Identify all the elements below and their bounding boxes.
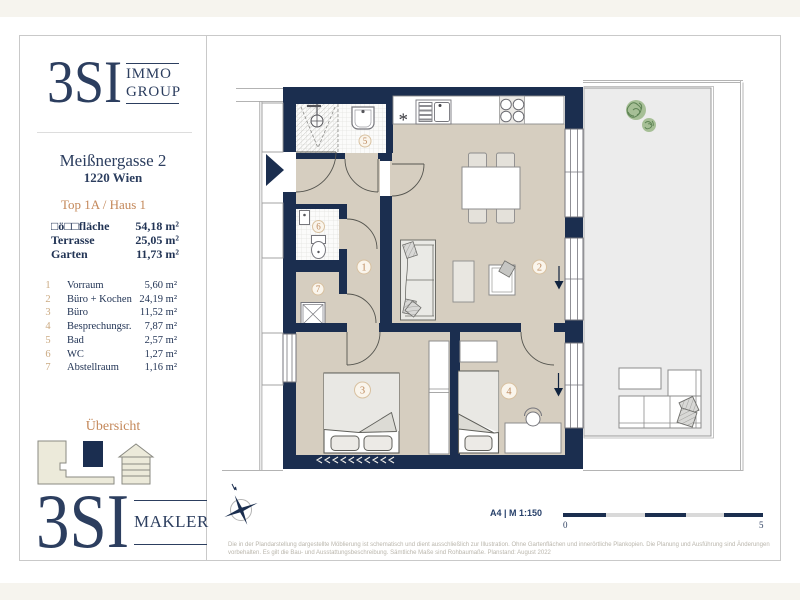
svg-text:3: 3 bbox=[360, 386, 365, 397]
svg-text:4: 4 bbox=[506, 387, 512, 398]
svg-text:7: 7 bbox=[316, 284, 321, 294]
svg-text:*: * bbox=[399, 110, 409, 131]
svg-text:2: 2 bbox=[537, 263, 542, 274]
svg-text:6: 6 bbox=[316, 222, 321, 232]
svg-text:5: 5 bbox=[363, 136, 368, 146]
svg-text:5: 5 bbox=[759, 520, 764, 530]
svg-text:0: 0 bbox=[563, 520, 568, 530]
svg-text:1: 1 bbox=[361, 263, 366, 274]
